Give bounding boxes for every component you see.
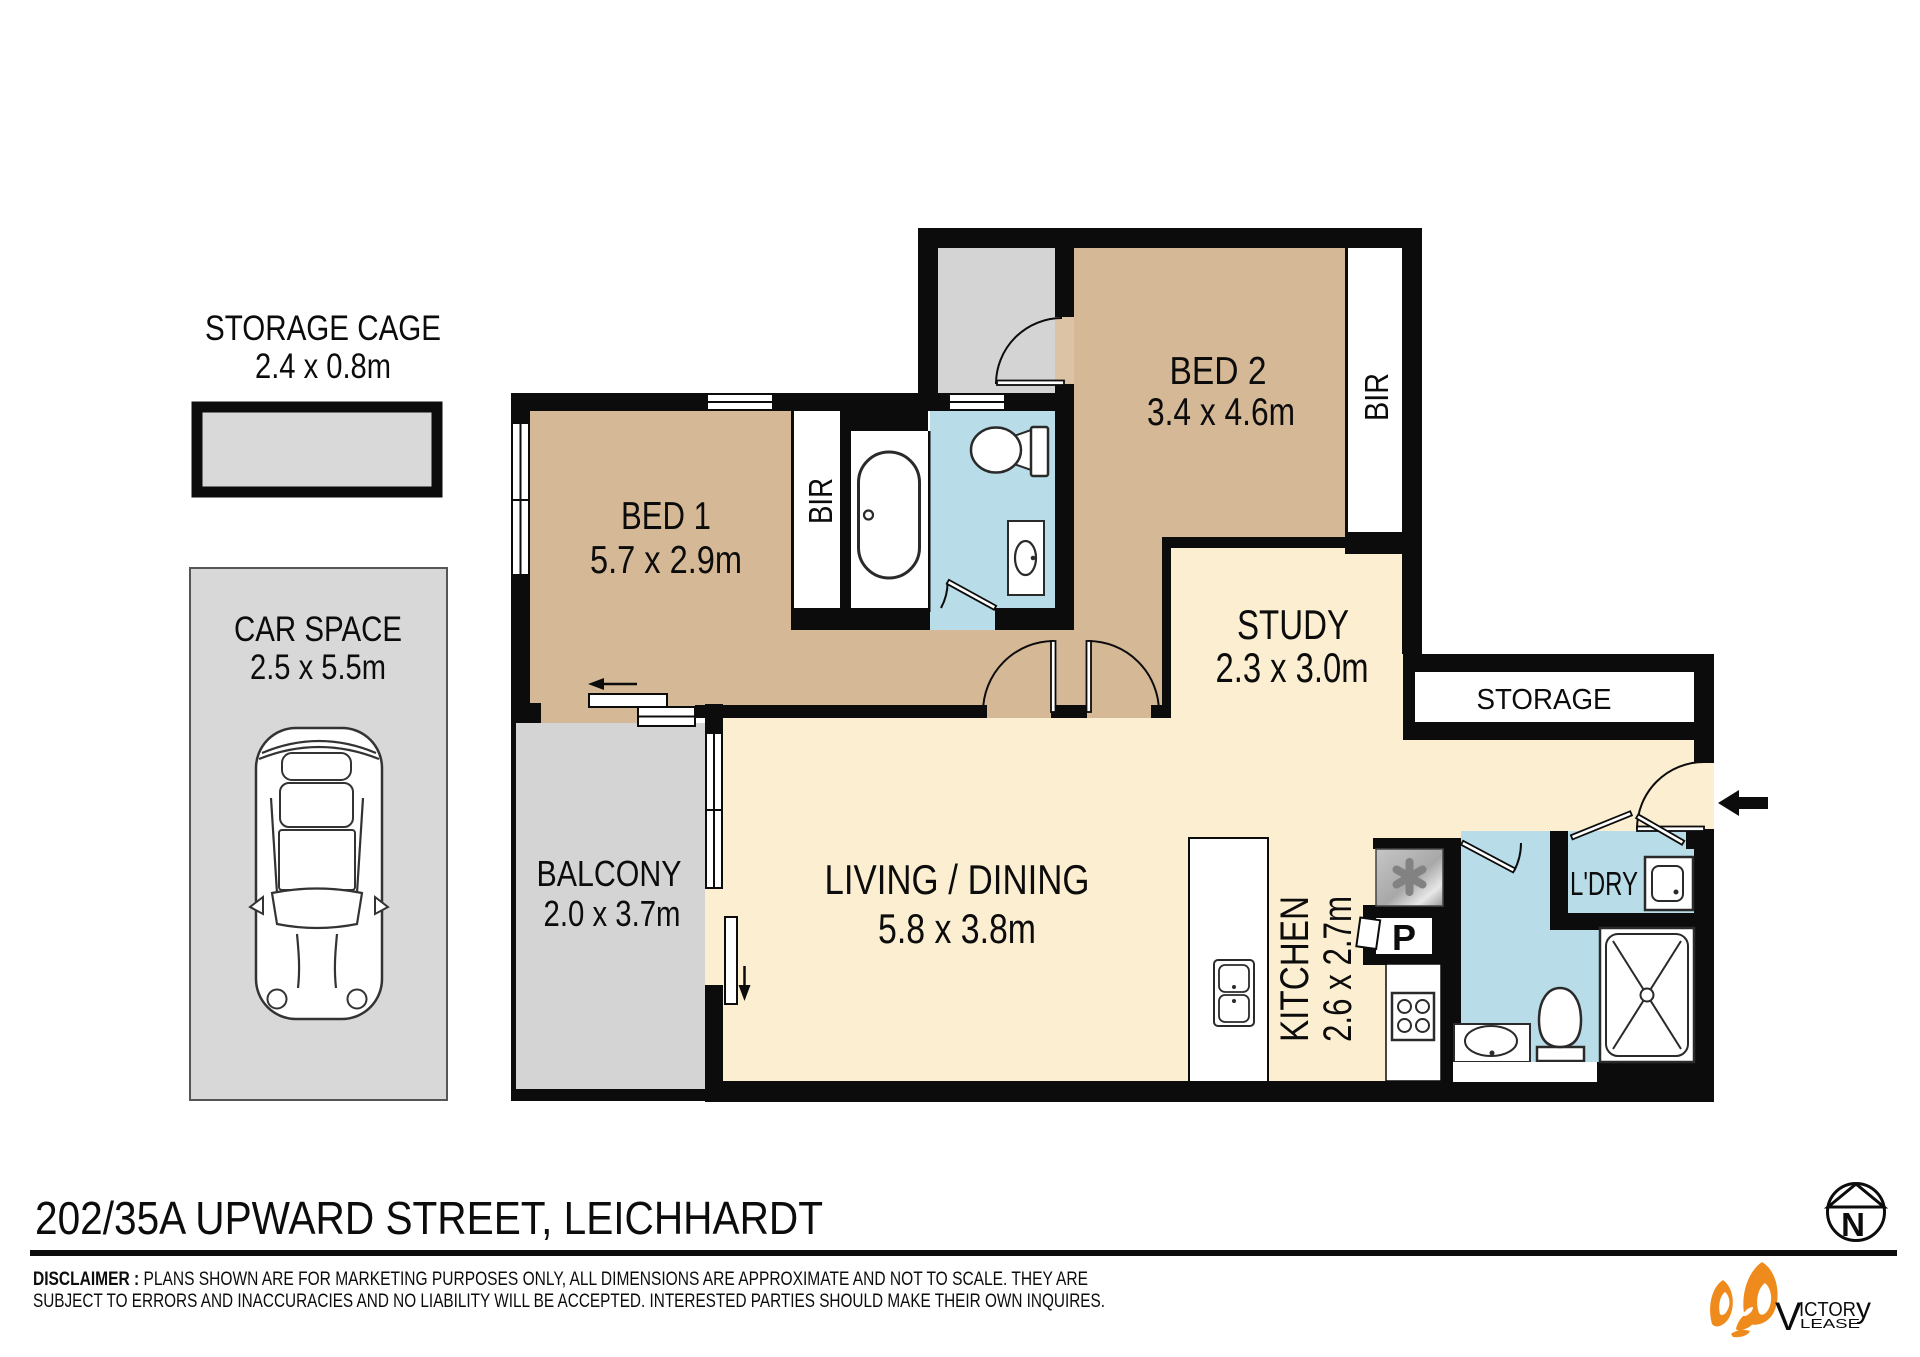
svg-text:BALCONY: BALCONY [537, 853, 682, 894]
svg-text:L'DRY: L'DRY [1570, 865, 1638, 902]
svg-text:SUBJECT TO ERRORS AND INACCURA: SUBJECT TO ERRORS AND INACCURACIES AND N… [33, 1290, 1105, 1312]
svg-text:N: N [1841, 1206, 1865, 1243]
svg-text:STUDY: STUDY [1237, 601, 1349, 648]
svg-text:STORAGE CAGE: STORAGE CAGE [205, 309, 441, 348]
svg-text:2.4 x 0.8m: 2.4 x 0.8m [255, 347, 391, 386]
svg-text:2.6 x 2.7m: 2.6 x 2.7m [1316, 896, 1360, 1042]
svg-text:DISCLAIMER : PLANS SHOWN ARE F: DISCLAIMER : PLANS SHOWN ARE FOR MARKETI… [33, 1268, 1088, 1290]
svg-text:P: P [1392, 917, 1416, 958]
svg-text:BED 1: BED 1 [621, 495, 711, 538]
svg-text:5.8 x 3.8m: 5.8 x 3.8m [878, 905, 1036, 952]
svg-text:2.3 x 3.0m: 2.3 x 3.0m [1216, 644, 1369, 691]
svg-text:BED 2: BED 2 [1170, 350, 1267, 393]
svg-text:3.4 x 4.6m: 3.4 x 4.6m [1147, 391, 1295, 434]
svg-text:2.5 x 5.5m: 2.5 x 5.5m [250, 648, 386, 687]
svg-text:CAR SPACE: CAR SPACE [234, 610, 402, 649]
svg-text:202/35A UPWARD STREET, LEICHHA: 202/35A UPWARD STREET, LEICHHARDT [35, 1192, 823, 1244]
svg-text:STORAGE: STORAGE [1477, 684, 1612, 716]
svg-text:KITCHEN: KITCHEN [1273, 896, 1317, 1042]
svg-text:2.0 x 3.7m: 2.0 x 3.7m [544, 893, 681, 934]
svg-text:5.7 x 2.9m: 5.7 x 2.9m [590, 539, 742, 582]
svg-text:BIR: BIR [802, 478, 839, 524]
svg-text:BIR: BIR [1358, 373, 1395, 421]
svg-text:LIVING / DINING: LIVING / DINING [825, 856, 1090, 903]
svg-text:V: V [1775, 1295, 1802, 1339]
svg-text:LEASE: LEASE [1800, 1317, 1860, 1331]
